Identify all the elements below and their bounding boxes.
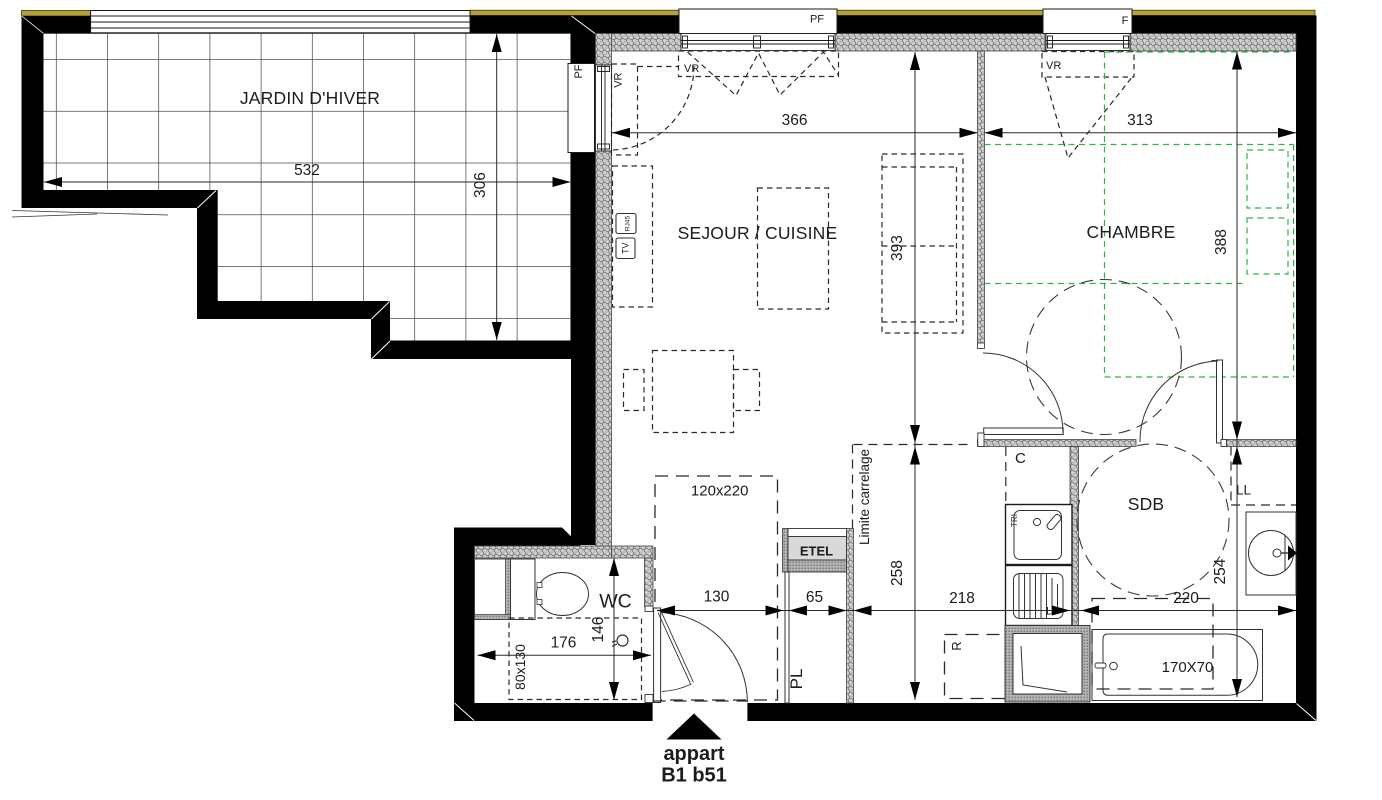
svg-text:176: 176 — [551, 635, 577, 652]
svg-text:VR: VR — [684, 63, 699, 75]
svg-text:VR: VR — [1046, 60, 1061, 72]
svg-text:366: 366 — [782, 112, 808, 129]
svg-text:TV: TV — [621, 243, 631, 255]
svg-text:C: C — [1015, 450, 1026, 467]
svg-text:L: L — [1046, 606, 1052, 618]
svg-text:Limite carrelage: Limite carrelage — [857, 449, 872, 545]
svg-text:254: 254 — [1212, 558, 1229, 584]
svg-text:TRI: TRI — [1010, 514, 1019, 527]
svg-text:CHAMBRE: CHAMBRE — [1087, 222, 1176, 242]
svg-text:JARDIN D'HIVER: JARDIN D'HIVER — [240, 88, 380, 108]
svg-text:170X70: 170X70 — [1162, 659, 1214, 676]
svg-text:388: 388 — [1213, 229, 1230, 255]
svg-text:532: 532 — [294, 162, 320, 179]
svg-text:393: 393 — [889, 235, 906, 261]
svg-text:PF: PF — [573, 64, 585, 78]
svg-text:306: 306 — [472, 172, 489, 198]
svg-text:80x130: 80x130 — [512, 644, 528, 690]
svg-text:R: R — [949, 641, 964, 650]
svg-text:PL: PL — [787, 669, 806, 690]
svg-text:SDB: SDB — [1128, 494, 1165, 514]
svg-text:65: 65 — [806, 589, 823, 606]
svg-text:258: 258 — [889, 560, 906, 586]
svg-text:130: 130 — [704, 589, 730, 606]
svg-text:220: 220 — [1173, 590, 1199, 607]
svg-text:WC: WC — [599, 591, 632, 613]
svg-text:VR: VR — [613, 72, 625, 87]
svg-text:SEJOUR / CUISINE: SEJOUR / CUISINE — [678, 223, 838, 243]
svg-text:LL: LL — [1236, 483, 1252, 498]
svg-text:ETEL: ETEL — [800, 544, 833, 559]
svg-text:313: 313 — [1127, 112, 1153, 129]
svg-text:RJ45: RJ45 — [625, 216, 632, 232]
svg-text:PF: PF — [810, 14, 824, 26]
svg-text:146: 146 — [590, 617, 607, 643]
svg-text:218: 218 — [949, 590, 975, 607]
svg-text:appart: appart — [663, 743, 724, 765]
svg-text:120x220: 120x220 — [691, 483, 749, 500]
svg-text:B1 b51: B1 b51 — [661, 765, 727, 787]
svg-text:F: F — [1122, 15, 1129, 27]
